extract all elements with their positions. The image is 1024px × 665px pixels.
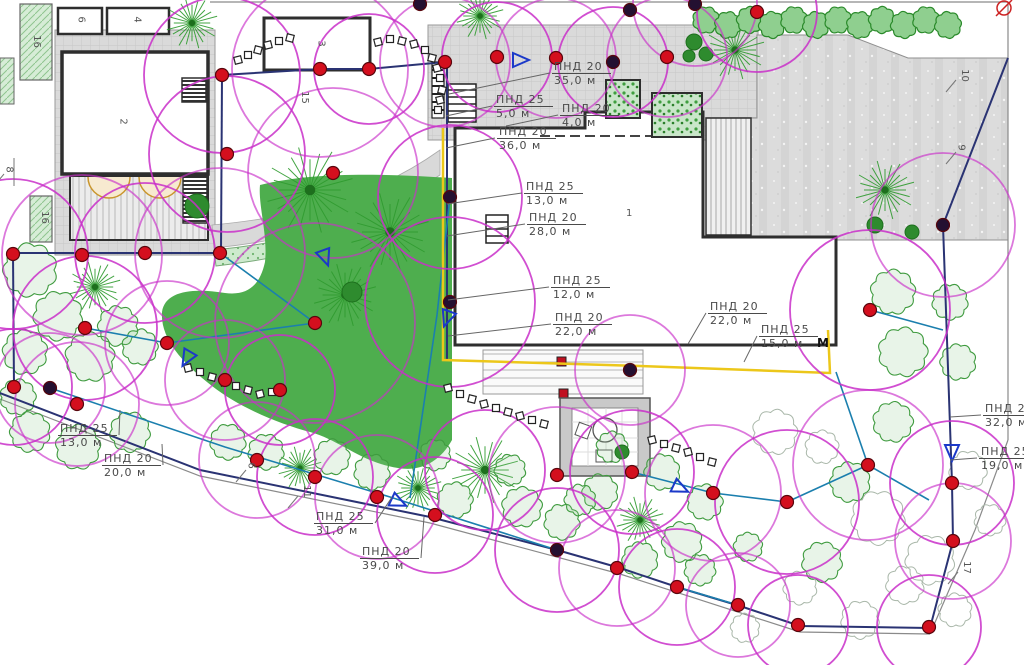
stepping-stone — [264, 41, 272, 49]
sprinkler-head — [214, 247, 227, 260]
sprinkler-head — [626, 466, 639, 479]
irrigation-plan-canvas: { "colors":{ "coverage":"#c92fc9","sprin… — [0, 0, 1024, 665]
building-2-annex-top — [182, 78, 206, 102]
bush-blob — [686, 34, 702, 50]
stepping-stone — [540, 420, 548, 428]
sprinkler-head — [551, 544, 564, 557]
bush-blob — [905, 225, 919, 239]
sprinkler-head — [946, 477, 959, 490]
sprinkler-head — [937, 219, 950, 232]
sprinkler-head — [439, 56, 452, 69]
sprinkler-head — [76, 249, 89, 262]
stepping-stone — [437, 75, 444, 82]
stepping-stone — [428, 54, 436, 62]
stepping-stone — [410, 40, 418, 48]
conifer-center — [415, 485, 421, 491]
stepping-stone — [436, 96, 444, 104]
conifer-center — [477, 13, 483, 19]
outbuilding-4 — [107, 8, 169, 34]
sprinkler-head — [7, 248, 20, 261]
label-leader — [950, 415, 981, 417]
building-2 — [62, 52, 208, 174]
conifer-center — [92, 284, 98, 290]
zone-leader — [236, 470, 246, 482]
stepping-stone — [256, 390, 264, 398]
shrub — [65, 332, 115, 381]
stepping-stone — [254, 46, 262, 54]
shrub — [110, 412, 151, 452]
conifer-center — [481, 466, 489, 474]
sprinkler-head — [309, 317, 322, 330]
conifer-center — [189, 20, 195, 26]
shrub-outline — [730, 613, 759, 642]
sprinkler-head — [923, 621, 936, 634]
stepping-stone — [387, 36, 394, 43]
conifer-center — [305, 185, 316, 196]
shrub — [494, 454, 526, 486]
sprinkler-head — [274, 384, 287, 397]
stepping-stone — [438, 86, 446, 94]
stepping-stone — [435, 107, 442, 114]
navy-pipe-line — [221, 75, 222, 253]
sprinkler-head — [327, 167, 340, 180]
stepping-stone — [672, 444, 680, 452]
stepping-stone — [234, 56, 242, 64]
green-strip-left — [0, 58, 14, 104]
shrub — [940, 344, 976, 380]
sprinkler-head — [491, 51, 504, 64]
sprinkler-square-2 — [559, 389, 568, 398]
sprinkler-head — [371, 491, 384, 504]
conifer-tree — [617, 497, 663, 543]
sprinkler-head — [139, 247, 152, 260]
shrub — [55, 424, 100, 469]
sprinkler-head — [707, 487, 720, 500]
green-strip-16a — [20, 4, 52, 80]
stepping-stone — [493, 405, 500, 412]
stepping-stone — [276, 38, 283, 45]
stepping-stone — [422, 47, 429, 54]
sprinkler-head — [221, 148, 234, 161]
stepping-stone — [208, 373, 216, 381]
sprinkler-head — [314, 63, 327, 76]
sprinkler-head — [251, 454, 264, 467]
stepping-stone — [468, 395, 476, 403]
sprinkler-head — [781, 496, 794, 509]
sprinkler-head — [216, 69, 229, 82]
sprinkler-head — [44, 382, 57, 395]
stepping-stone — [684, 448, 692, 456]
stepping-stone — [648, 436, 656, 444]
stepping-stone — [398, 37, 406, 45]
teal-pipe-line — [836, 372, 868, 465]
sprinkler-head — [309, 471, 322, 484]
sprinkler-head — [219, 374, 232, 387]
sprinkler-head — [71, 398, 84, 411]
outer-boundary-line — [930, 440, 1008, 634]
stepping-stone — [197, 369, 204, 376]
sprinkler-head — [607, 56, 620, 69]
sprinkler-head — [624, 4, 637, 17]
shrub — [622, 542, 658, 578]
stepping-stone — [697, 454, 704, 461]
sprinkler-head — [444, 191, 457, 204]
stepping-stone — [233, 383, 240, 390]
sprinkler-head — [671, 581, 684, 594]
sprinkler-head — [661, 51, 674, 64]
sprinkler-head — [947, 535, 960, 548]
sprinkler-head — [550, 52, 563, 65]
stepping-stone — [244, 386, 252, 394]
sprinkler-head — [624, 364, 637, 377]
hedge-row — [693, 6, 961, 38]
sprinkler-head — [8, 381, 21, 394]
sprinkler-head — [79, 322, 92, 335]
sprinkler-head — [414, 0, 427, 11]
sprinkler-head — [551, 469, 564, 482]
bush-blob — [342, 282, 362, 302]
hedge-bush — [935, 12, 962, 39]
sprinkler-head — [689, 0, 702, 11]
sprinkler-head — [611, 562, 624, 575]
shrub — [9, 412, 49, 453]
conifer-needle — [468, 453, 482, 467]
stepping-stone — [504, 408, 512, 416]
valve-triangle-symbol — [945, 445, 959, 461]
stepping-stone — [457, 391, 464, 398]
teal-pipe-line — [868, 465, 929, 500]
house-terrace-stripes — [706, 118, 751, 235]
sprinkler-head — [862, 459, 875, 472]
outbuilding-6 — [58, 8, 102, 34]
stepping-stone — [661, 441, 668, 448]
sprinkler-head — [161, 337, 174, 350]
shrub — [210, 424, 246, 460]
planter-2 — [652, 93, 702, 137]
stepping-stone — [374, 38, 382, 46]
sprinkler-head — [864, 304, 877, 317]
shrub — [122, 329, 158, 365]
sprinkler-head — [444, 296, 457, 309]
site-plan-drawing — [0, 0, 1024, 665]
green-strip-16b — [30, 196, 52, 242]
sprinkler-head — [732, 599, 745, 612]
bush-blob — [683, 50, 695, 62]
stepping-stone — [480, 400, 488, 408]
stepping-stone — [286, 34, 294, 42]
sprinkler-head — [429, 509, 442, 522]
shrub — [879, 327, 929, 377]
sprinkler-head — [363, 63, 376, 76]
conifer-center — [637, 517, 643, 523]
hedge-bush — [847, 12, 874, 39]
sprinkler-head — [751, 6, 764, 19]
stepping-stone — [529, 417, 536, 424]
stepping-stone — [516, 412, 524, 420]
stepping-stone — [245, 52, 252, 59]
stepping-stone — [444, 384, 452, 392]
shrub — [873, 402, 914, 443]
sprinkler-head — [792, 619, 805, 632]
stepping-stone — [708, 458, 716, 466]
